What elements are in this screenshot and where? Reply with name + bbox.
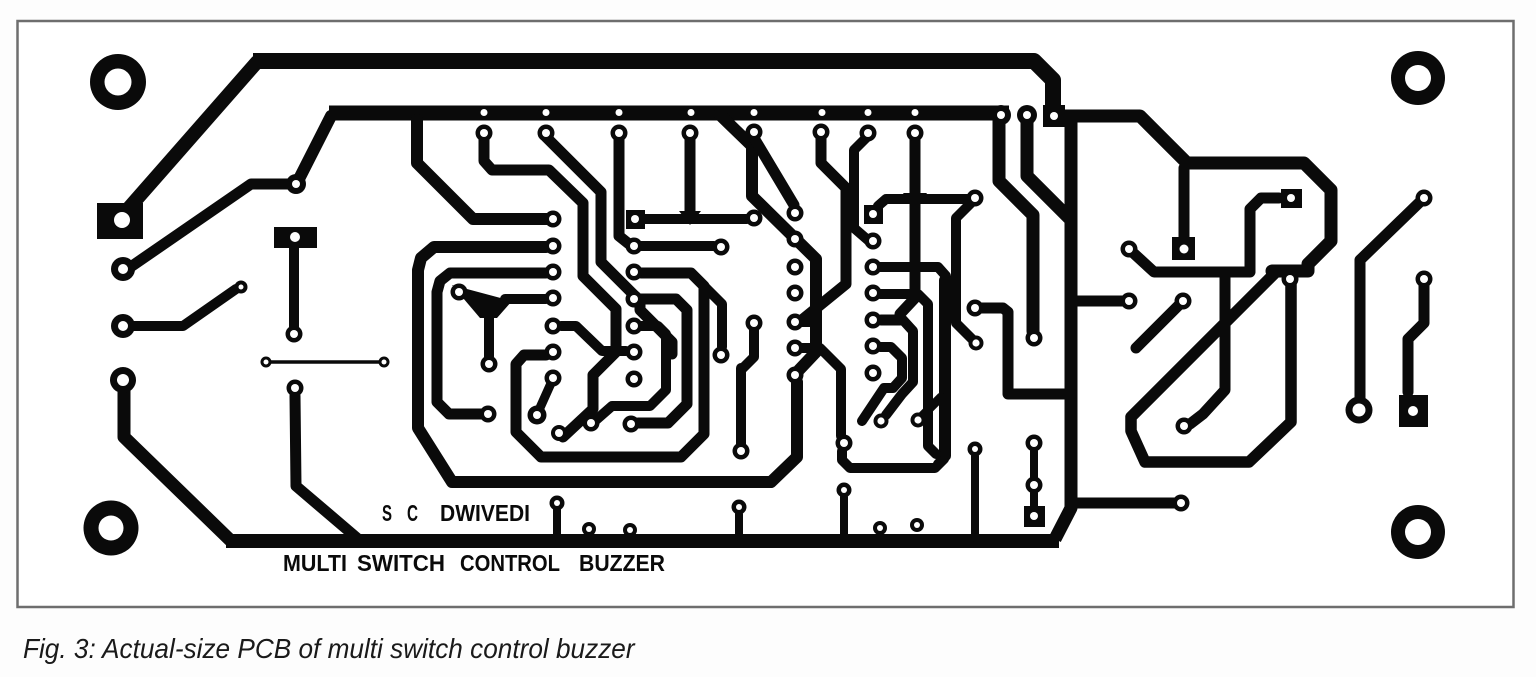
svg-text:SWITCH: SWITCH	[357, 550, 445, 576]
svg-text:MULTI: MULTI	[283, 550, 347, 576]
svg-text:DWIVEDI: DWIVEDI	[440, 500, 530, 526]
svg-text:C: C	[407, 500, 418, 526]
svg-text:CONTROL: CONTROL	[460, 550, 560, 576]
svg-text:BUZZER: BUZZER	[579, 550, 665, 576]
svg-text:S: S	[382, 500, 392, 526]
